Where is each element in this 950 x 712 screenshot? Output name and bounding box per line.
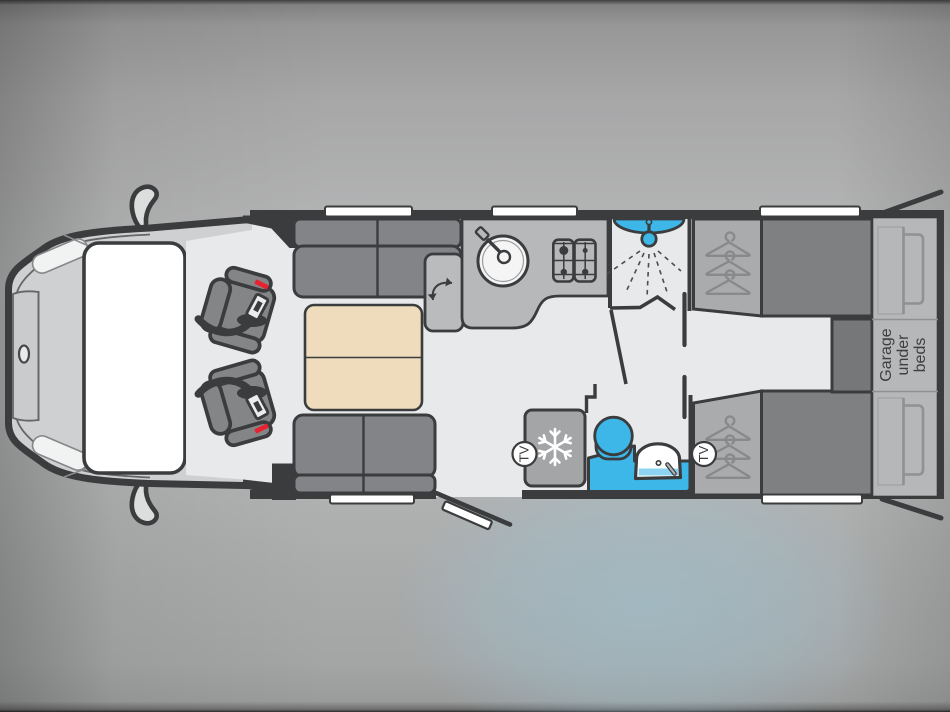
svg-text:TV: TV [696,445,711,462]
svg-text:under: under [895,334,912,376]
svg-text:beds: beds [912,338,929,373]
svg-text:Garage: Garage [878,328,895,381]
svg-text:TV: TV [517,445,532,462]
